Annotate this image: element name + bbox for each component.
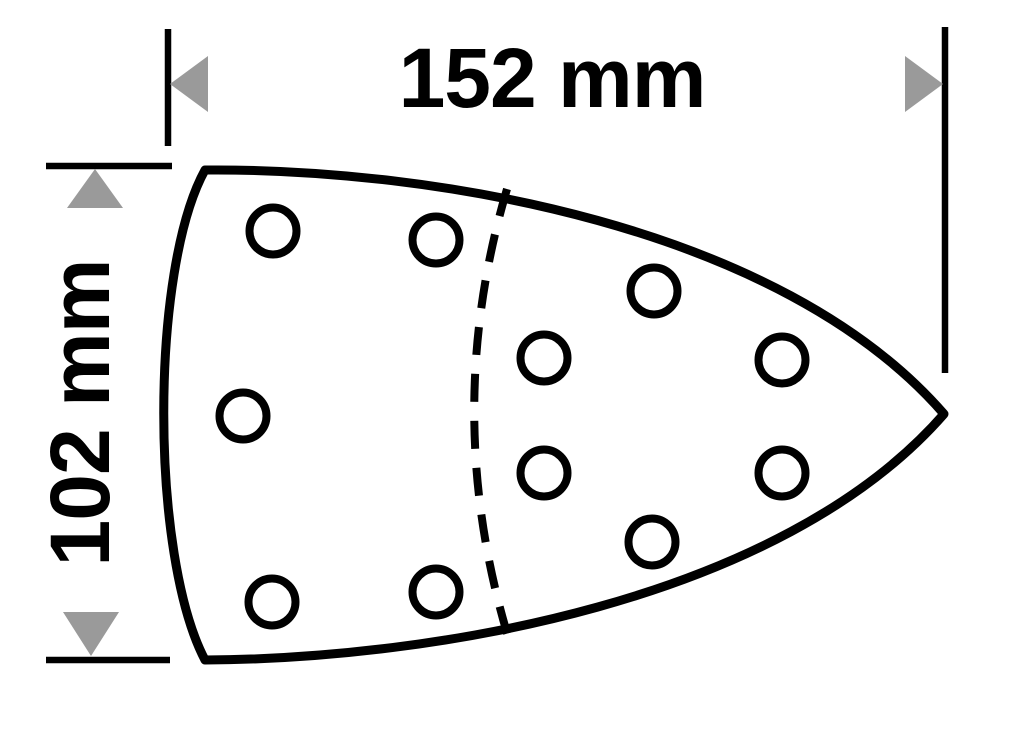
height-dimension-label: 102 mm [34,163,126,663]
arrow-left-icon [170,56,208,112]
hole [631,268,678,315]
hole [759,337,806,384]
arrow-right-icon [905,56,943,112]
hole [521,450,568,497]
hole [759,450,806,497]
hole [413,217,460,264]
pad-section-dashed-line [474,189,510,643]
width-dimension-label: 152 mm [302,32,802,124]
hole [413,569,460,616]
hole [629,519,676,566]
hole [250,208,297,255]
sanding-pad-diagram: 152 mm 102 mm [0,0,1024,735]
hole [521,335,568,382]
hole [220,393,267,440]
pad-outline [164,170,944,660]
hole [249,579,296,626]
